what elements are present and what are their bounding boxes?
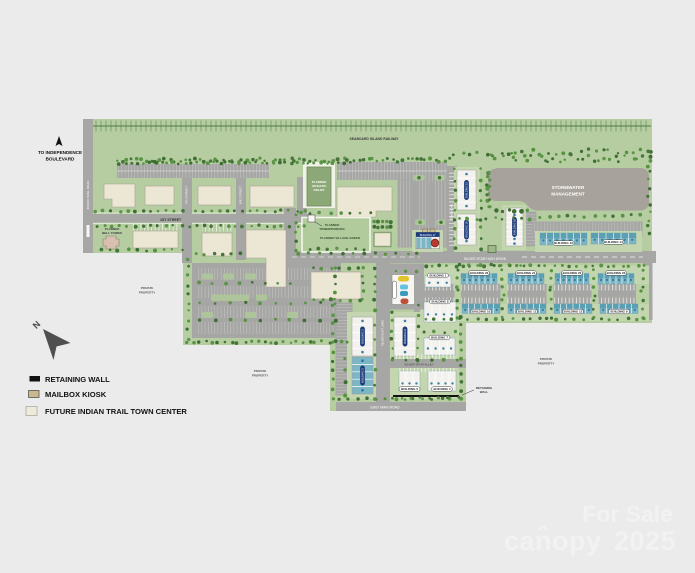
svg-text:SILVER DUST LANE: SILVER DUST LANE xyxy=(381,320,385,346)
svg-text:BUILDING 16: BUILDING 16 xyxy=(465,221,469,237)
svg-text:BUILDING 8: BUILDING 8 xyxy=(431,300,448,304)
svg-text:3RD STREET: 3RD STREET xyxy=(239,185,243,204)
svg-text:TO INDEPENDENCE: TO INDEPENDENCE xyxy=(38,150,82,155)
svg-text:can̂opy: can̂opy xyxy=(504,524,602,556)
svg-text:BELL TOWER: BELL TOWER xyxy=(102,231,123,235)
svg-text:BUILDING 9: BUILDING 9 xyxy=(610,310,627,314)
svg-text:BUILDING 4: BUILDING 4 xyxy=(433,387,450,391)
svg-text:BUILDING 21: BUILDING 21 xyxy=(517,271,536,275)
svg-text:2025: 2025 xyxy=(614,526,676,556)
svg-text:PROPERTY: PROPERTY xyxy=(252,374,269,378)
svg-text:BUILDING 14: BUILDING 14 xyxy=(604,240,623,244)
svg-text:BUILDING 15: BUILDING 15 xyxy=(465,182,469,198)
svg-text:BUILDING 2: BUILDING 2 xyxy=(361,329,365,344)
svg-text:EAST MAIN ROAD: EAST MAIN ROAD xyxy=(371,406,401,410)
svg-text:BUILDING 12: BUILDING 12 xyxy=(564,310,583,314)
svg-text:BUILDING 11: BUILDING 11 xyxy=(518,310,537,314)
svg-text:4TH STREET: 4TH STREET xyxy=(185,186,189,205)
svg-text:PRIVATE: PRIVATE xyxy=(141,286,154,290)
svg-text:BUILDING 22: BUILDING 22 xyxy=(563,271,582,275)
svg-text:BUILDING 17: BUILDING 17 xyxy=(420,233,436,237)
svg-text:FUTURE INDIAN TRAIL TOWN CENTE: FUTURE INDIAN TRAIL TOWN CENTER xyxy=(45,407,187,416)
svg-text:SEABOARD ISLAND RAILWAY: SEABOARD ISLAND RAILWAY xyxy=(349,137,399,141)
svg-text:BOULEVARD: BOULEVARD xyxy=(46,157,75,162)
svg-text:PROPERTY: PROPERTY xyxy=(139,291,156,295)
svg-text:BUILDING 13: BUILDING 13 xyxy=(554,241,573,245)
svg-text:BUILDING 16: BUILDING 16 xyxy=(513,219,517,235)
svg-text:FIELDS: FIELDS xyxy=(314,188,325,192)
svg-text:INDIAN TRAIL ROAD: INDIAN TRAIL ROAD xyxy=(86,180,90,210)
svg-text:BUILDING 7: BUILDING 7 xyxy=(431,336,448,340)
svg-text:1ST STREET: 1ST STREET xyxy=(160,218,182,222)
svg-text:BUILDING 20: BUILDING 20 xyxy=(470,271,489,275)
svg-text:MAILBOX KIOSK: MAILBOX KIOSK xyxy=(45,390,107,399)
svg-text:RETAINING WALL: RETAINING WALL xyxy=(45,375,110,384)
svg-text:BUILDING 10: BUILDING 10 xyxy=(472,310,491,314)
svg-text:TOWER/PARKING: TOWER/PARKING xyxy=(319,227,345,231)
svg-text:WALL: WALL xyxy=(480,390,489,394)
svg-text:BUILDING 23: BUILDING 23 xyxy=(607,271,626,275)
svg-text:BUILDING 5: BUILDING 5 xyxy=(401,387,418,391)
svg-text:PLANNED VILLAGE GREEN: PLANNED VILLAGE GREEN xyxy=(320,236,360,240)
svg-text:SILVER STAR HIGH DRIVE: SILVER STAR HIGH DRIVE xyxy=(464,257,507,261)
svg-text:BUILDING 3: BUILDING 3 xyxy=(361,368,365,383)
svg-text:PRIVATE: PRIVATE xyxy=(254,369,267,373)
svg-text:PROPERTY: PROPERTY xyxy=(538,362,555,366)
svg-text:STORMWATER: STORMWATER xyxy=(552,185,585,190)
svg-text:MANAGEMENT: MANAGEMENT xyxy=(551,192,585,197)
svg-text:BUILDING 8: BUILDING 8 xyxy=(403,329,407,344)
svg-text:SILVER SPUR ALLEY: SILVER SPUR ALLEY xyxy=(404,363,434,367)
svg-text:For Sale: For Sale xyxy=(582,501,673,527)
svg-text:PRIVATE: PRIVATE xyxy=(540,357,553,361)
svg-text:BUILDING 1: BUILDING 1 xyxy=(429,274,446,278)
